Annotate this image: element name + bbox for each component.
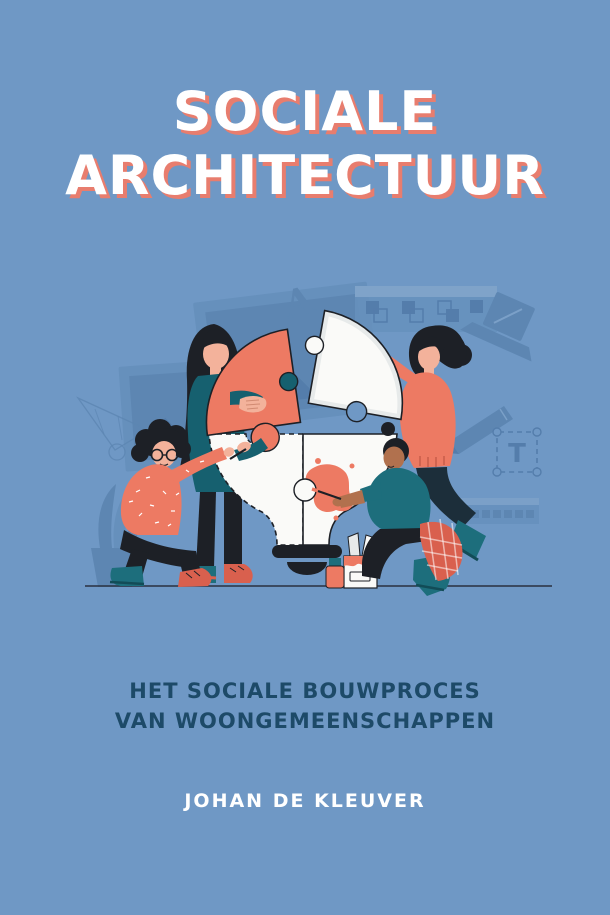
leg xyxy=(196,492,216,568)
text-tool-glyph: T xyxy=(508,439,526,469)
teamwork-puzzle-illustration: A T xyxy=(0,0,610,915)
author-name: JOHAN DE KLEUVER xyxy=(0,790,610,812)
book-cover: SOCIALE ARCHITECTUUR A xyxy=(0,0,610,915)
face xyxy=(152,441,176,467)
subtitle-line-1: HET SOCIALE BOUWPROCES xyxy=(0,676,610,706)
subtitle: HET SOCIALE BOUWPROCES VAN WOONGEMEENSCH… xyxy=(0,676,610,736)
text-tool-icon: T xyxy=(493,428,541,476)
hair-bun xyxy=(381,422,395,436)
subtitle-line-2: VAN WOONGEMEENSCHAPPEN xyxy=(0,706,610,736)
shoe xyxy=(224,564,253,583)
paint-bottle xyxy=(326,558,344,588)
leg xyxy=(224,492,242,566)
